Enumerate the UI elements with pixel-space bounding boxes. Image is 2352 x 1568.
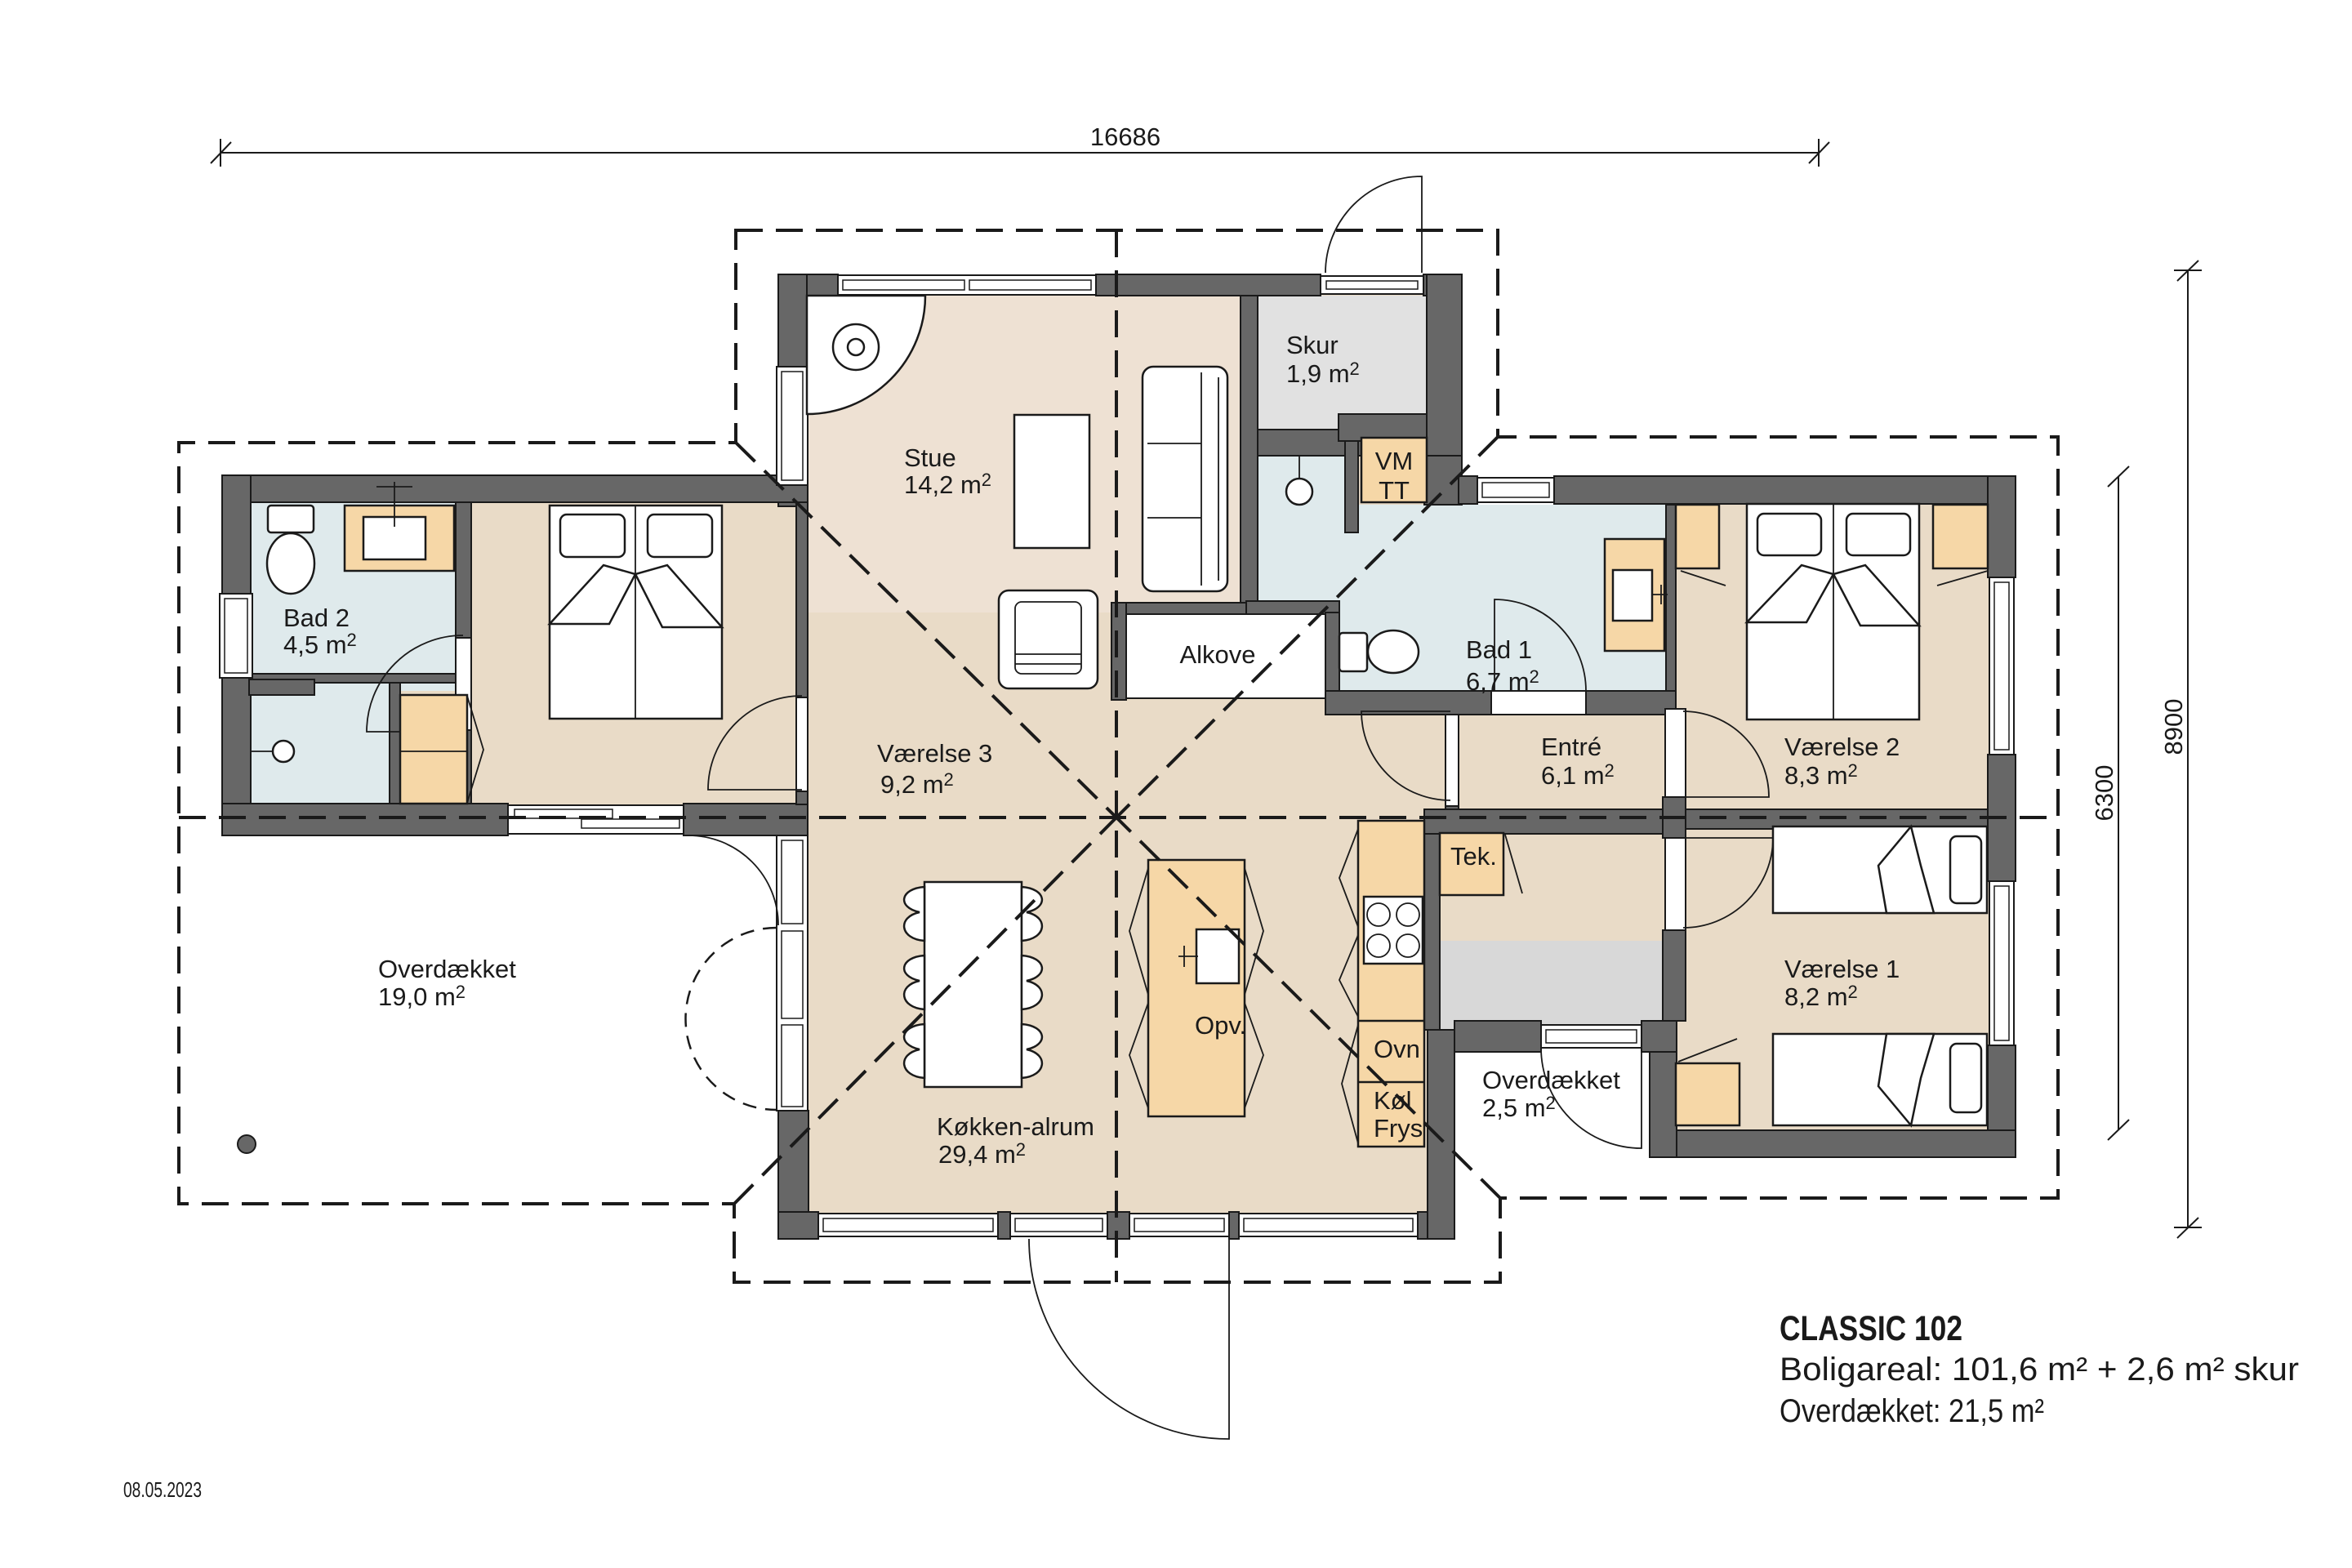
svg-text:08.05.2023: 08.05.2023 (123, 1477, 202, 1502)
svg-text:Overdækket: Overdækket (1482, 1066, 1620, 1094)
svg-text:6,1 m2: 6,1 m2 (1541, 760, 1615, 790)
svg-text:Overdækket: 21,5 m²: Overdækket: 21,5 m² (1780, 1393, 2044, 1429)
svg-text:19,0 m2: 19,0 m2 (378, 982, 465, 1011)
svg-text:9,2 m2: 9,2 m2 (880, 769, 954, 799)
svg-text:Entré: Entré (1541, 733, 1601, 761)
svg-text:Værelse 1: Værelse 1 (1784, 955, 1900, 983)
svg-text:6300: 6300 (2090, 765, 2118, 822)
svg-text:Værelse 2: Værelse 2 (1784, 733, 1900, 761)
svg-text:6,7 m2: 6,7 m2 (1466, 666, 1539, 696)
svg-text:Stue: Stue (904, 443, 956, 472)
svg-text:Opv.: Opv. (1195, 1011, 1246, 1040)
svg-text:14,2 m2: 14,2 m2 (904, 470, 991, 499)
svg-text:Overdækket: Overdækket (378, 955, 516, 983)
svg-text:Ovn: Ovn (1374, 1035, 1420, 1063)
svg-text:Bad 1: Bad 1 (1466, 635, 1532, 664)
svg-text:Skur: Skur (1286, 331, 1339, 359)
svg-text:Køkken-alrum: Køkken-alrum (937, 1112, 1094, 1141)
svg-text:Køl: Køl (1374, 1086, 1412, 1115)
svg-text:TT: TT (1379, 476, 1410, 505)
svg-text:1,9 m2: 1,9 m2 (1286, 359, 1360, 388)
svg-text:Tek.: Tek. (1450, 842, 1497, 871)
svg-text:Alkove: Alkove (1179, 640, 1255, 669)
svg-text:VM: VM (1375, 447, 1414, 475)
svg-text:16686: 16686 (1090, 122, 1160, 151)
svg-text:29,4 m2: 29,4 m2 (938, 1139, 1026, 1169)
svg-text:8,2 m2: 8,2 m2 (1784, 982, 1858, 1011)
svg-text:Boligareal: 101,6 m² + 2,6 m²: Boligareal: 101,6 m² + 2,6 m² skur (1780, 1352, 2299, 1388)
svg-text:8900: 8900 (2159, 699, 2188, 755)
svg-text:2,5 m2: 2,5 m2 (1482, 1093, 1556, 1122)
svg-text:4,5 m2: 4,5 m2 (283, 630, 357, 659)
svg-text:8,3 m2: 8,3 m2 (1784, 760, 1858, 790)
svg-text:Værelse 3: Værelse 3 (877, 739, 992, 768)
svg-text:Bad 2: Bad 2 (283, 604, 350, 632)
svg-text:CLASSIC 102: CLASSIC 102 (1780, 1309, 1962, 1348)
svg-text:Frys: Frys (1374, 1114, 1423, 1143)
